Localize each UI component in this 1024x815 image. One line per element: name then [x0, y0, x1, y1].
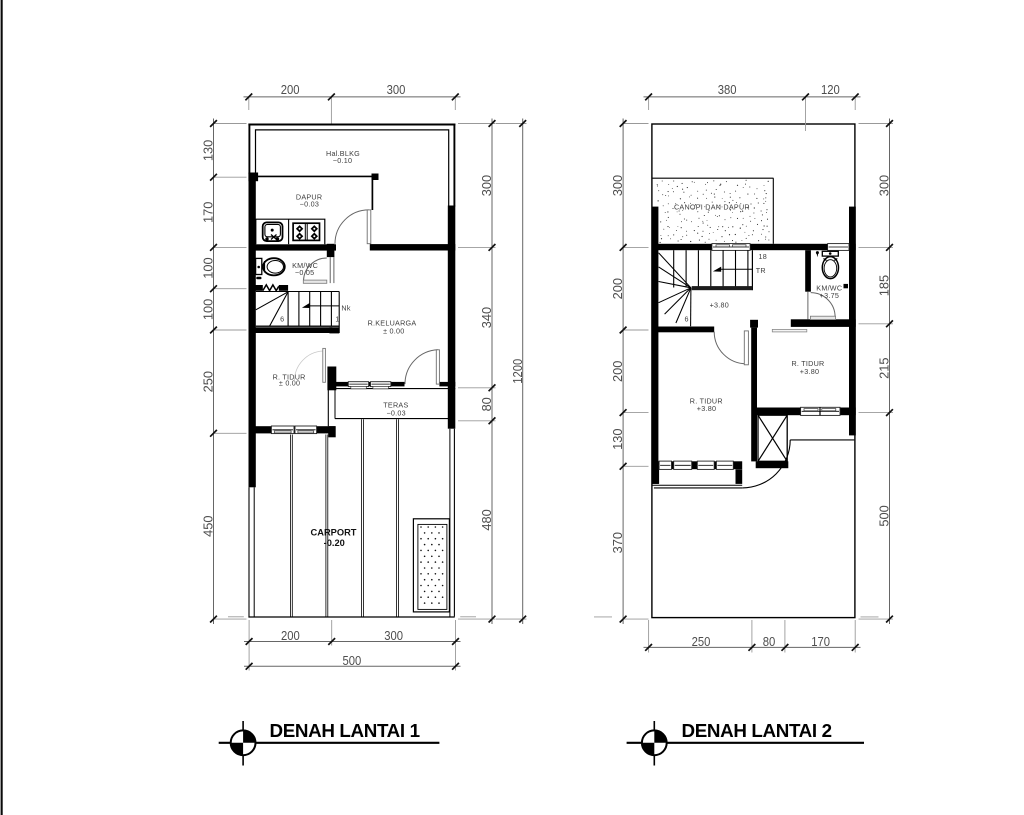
svg-text:380: 380 [718, 82, 737, 97]
svg-text:200: 200 [281, 82, 300, 97]
svg-text:500: 500 [343, 653, 362, 668]
svg-text:80: 80 [763, 634, 776, 649]
svg-text:-0.20: -0.20 [324, 538, 345, 548]
svg-text:DENAH LANTAI 2: DENAH LANTAI 2 [682, 720, 832, 741]
svg-text:100: 100 [201, 257, 216, 278]
svg-text:CANOPI DAN DAPUR: CANOPI DAN DAPUR [674, 203, 750, 212]
svg-text:TR: TR [756, 266, 766, 275]
svg-text:300: 300 [610, 175, 625, 196]
svg-text:−0.03: −0.03 [300, 199, 319, 208]
svg-text:−0.10: −0.10 [333, 156, 352, 165]
svg-text:± 0.00: ± 0.00 [279, 378, 300, 387]
svg-text:DENAH LANTAI 1: DENAH LANTAI 1 [270, 720, 420, 741]
svg-text:+3.80: +3.80 [697, 404, 716, 413]
svg-text:370: 370 [610, 532, 625, 553]
svg-text:100: 100 [201, 299, 216, 320]
svg-text:+3.80: +3.80 [800, 367, 819, 376]
svg-text:120: 120 [821, 82, 840, 97]
svg-text:300: 300 [387, 82, 406, 97]
svg-text:480: 480 [479, 509, 494, 530]
svg-text:Nk: Nk [341, 303, 350, 312]
svg-text:CARPORT: CARPORT [311, 527, 357, 537]
svg-text:300: 300 [877, 175, 892, 196]
svg-text:300: 300 [479, 175, 494, 196]
svg-text:18: 18 [759, 252, 768, 261]
svg-text:340: 340 [479, 307, 494, 328]
svg-text:130: 130 [201, 140, 216, 161]
svg-text:450: 450 [201, 516, 216, 537]
svg-text:6: 6 [280, 314, 284, 323]
svg-text:130: 130 [610, 429, 625, 450]
svg-text:200: 200 [610, 278, 625, 299]
svg-text:500: 500 [877, 505, 892, 526]
svg-text:± 0.00: ± 0.00 [383, 327, 404, 336]
svg-text:170: 170 [201, 202, 216, 223]
svg-text:1200: 1200 [510, 359, 525, 384]
svg-text:200: 200 [610, 361, 625, 382]
svg-text:215: 215 [877, 358, 892, 379]
svg-text:6: 6 [684, 315, 688, 324]
svg-text:200: 200 [281, 628, 300, 643]
svg-text:80: 80 [479, 397, 494, 411]
svg-text:170: 170 [811, 634, 830, 649]
svg-text:+3.75: +3.75 [820, 291, 839, 300]
svg-text:185: 185 [877, 275, 892, 296]
svg-text:1: 1 [335, 314, 339, 323]
svg-text:250: 250 [201, 371, 216, 392]
svg-text:250: 250 [692, 634, 711, 649]
svg-text:−0.03: −0.03 [386, 409, 405, 418]
svg-text:+3.80: +3.80 [710, 301, 729, 310]
svg-text:300: 300 [384, 628, 403, 643]
